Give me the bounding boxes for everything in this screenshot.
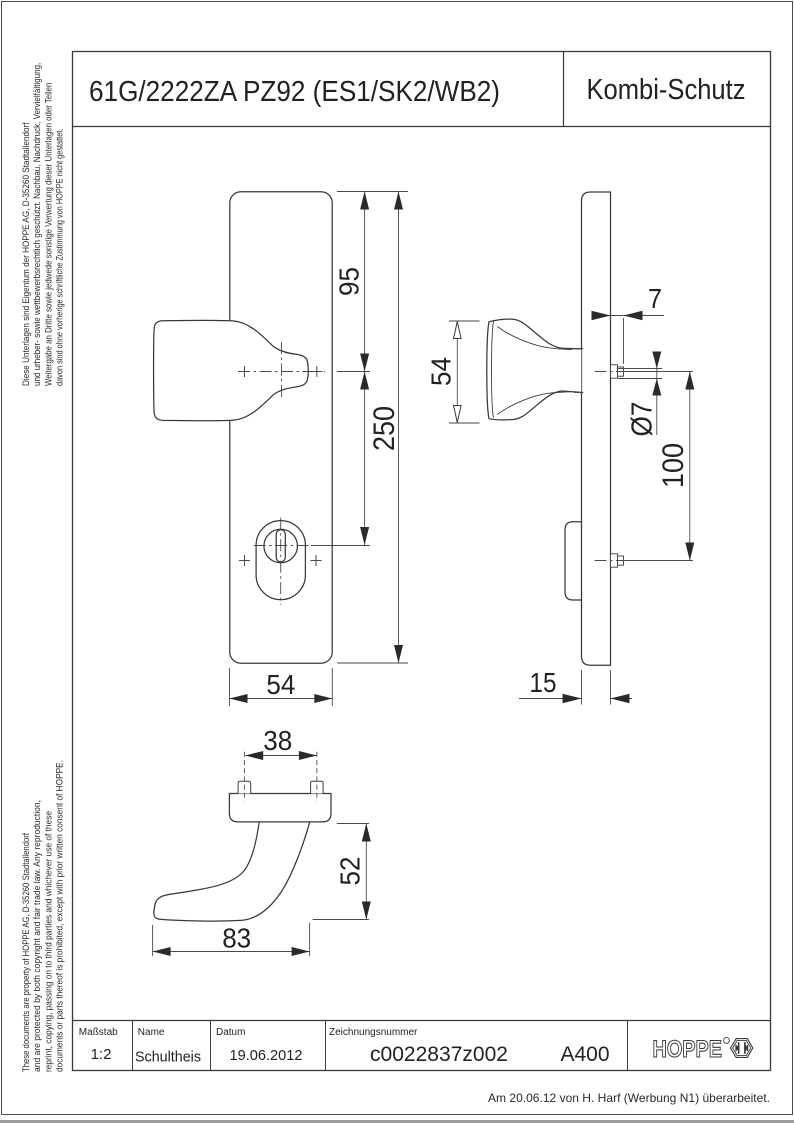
svg-text:100: 100 xyxy=(657,443,690,488)
svg-text:54: 54 xyxy=(266,669,295,700)
svg-text:and are protected by both copy: and are protected by both copyright and … xyxy=(32,800,43,1072)
svg-text:reprint, copying, passing on t: reprint, copying, passing on to third pa… xyxy=(43,811,54,1072)
svg-text:54: 54 xyxy=(426,357,457,386)
svg-text:Am 20.06.12 von H. Harf (Werbu: Am 20.06.12 von H. Harf (Werbung N1) übe… xyxy=(488,1091,770,1105)
svg-text:52: 52 xyxy=(335,857,366,886)
svg-text:Name: Name xyxy=(138,1027,165,1038)
svg-text:61G/2222ZA PZ92 (ES1/SK2/WB2): 61G/2222ZA PZ92 (ES1/SK2/WB2) xyxy=(89,76,500,108)
svg-text:Ø7: Ø7 xyxy=(627,402,659,437)
svg-text:95: 95 xyxy=(334,267,365,296)
svg-text:Zeichnungsnummer: Zeichnungsnummer xyxy=(329,1027,418,1038)
svg-text:15: 15 xyxy=(530,667,557,698)
svg-text:1:2: 1:2 xyxy=(91,1046,112,1063)
svg-text:HOPPE: HOPPE xyxy=(653,1036,723,1063)
svg-text:38: 38 xyxy=(263,725,292,756)
svg-text:Maßstab: Maßstab xyxy=(79,1027,118,1038)
svg-text:davon sind ohne vorherige schr: davon sind ohne vorherige schriftliche Z… xyxy=(55,129,66,386)
svg-text:Diese Unterlagen sind Eigentum: Diese Unterlagen sind Eigentum der HOPPE… xyxy=(21,122,32,386)
svg-text:Datum: Datum xyxy=(216,1027,245,1038)
svg-text:documents or parts thereof is: documents or parts thereof is prohibited… xyxy=(55,760,66,1072)
svg-text:7: 7 xyxy=(648,283,662,314)
svg-text:83: 83 xyxy=(222,923,251,954)
svg-text:These documents are property: These documents are property of HOPPE AG… xyxy=(21,833,32,1072)
svg-text:c0022837z002: c0022837z002 xyxy=(370,1043,508,1066)
svg-text:Weitergabe an Dritte sowie jed: Weitergabe an Dritte sowie jedwede sonst… xyxy=(43,83,54,386)
svg-text:und urheber- sowie wettbewerbs: und urheber- sowie wettbewerbsrechtlich … xyxy=(32,63,43,386)
svg-text:Schultheis: Schultheis xyxy=(135,1049,201,1066)
svg-text:19.06.2012: 19.06.2012 xyxy=(230,1047,303,1064)
svg-text:Kombi-Schutz: Kombi-Schutz xyxy=(587,74,746,106)
svg-text:250: 250 xyxy=(368,406,401,451)
svg-text:A400: A400 xyxy=(560,1043,609,1066)
